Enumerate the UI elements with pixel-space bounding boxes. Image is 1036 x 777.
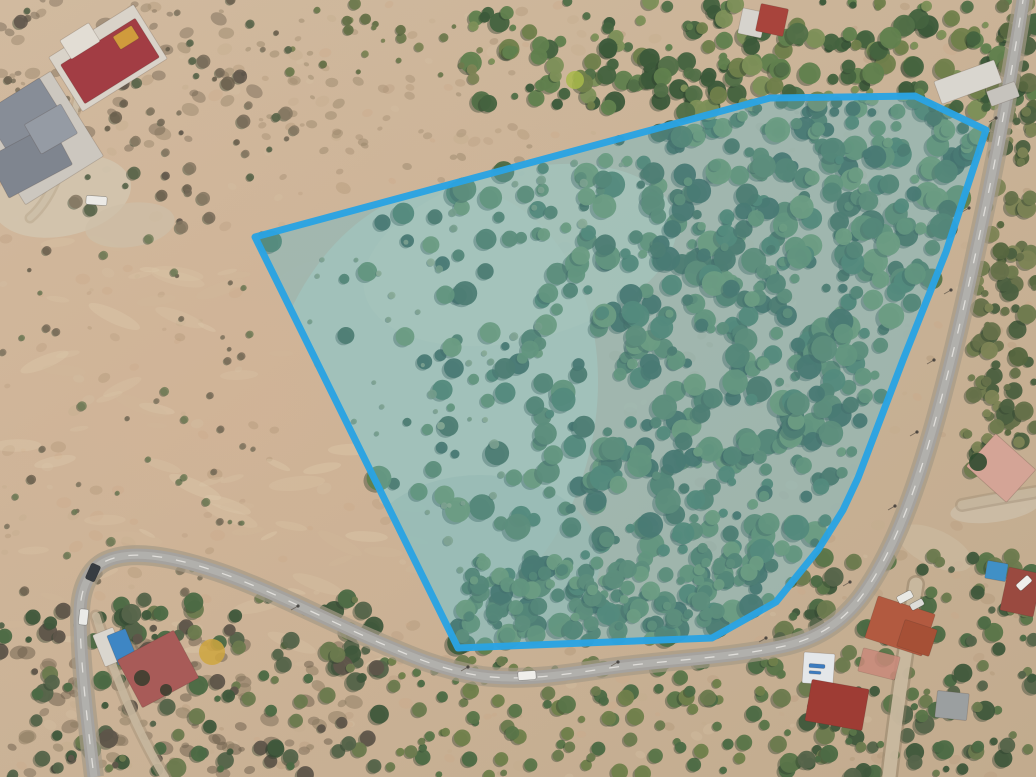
- golden-tree-southwest: [199, 639, 225, 665]
- pool-east-house: [985, 560, 1009, 581]
- palm-shadow-on-roof-2: [160, 684, 172, 696]
- aerial-scene: [0, 0, 1036, 777]
- palm-east-house: [969, 453, 987, 471]
- shop-blue-sign-mark-2: [809, 671, 821, 675]
- car-white-road-west: [78, 609, 89, 626]
- yellow-shrub-north: [566, 71, 584, 89]
- palm-shadow-on-roof: [134, 670, 150, 686]
- van-white-northwest-driveway: [86, 195, 108, 205]
- shop-blue-sign-mark: [809, 663, 825, 668]
- house-north-red: [755, 3, 788, 36]
- aerial-photo: [0, 0, 1036, 777]
- car-white-road-south: [518, 670, 537, 680]
- shack-gray-southeast: [935, 690, 970, 720]
